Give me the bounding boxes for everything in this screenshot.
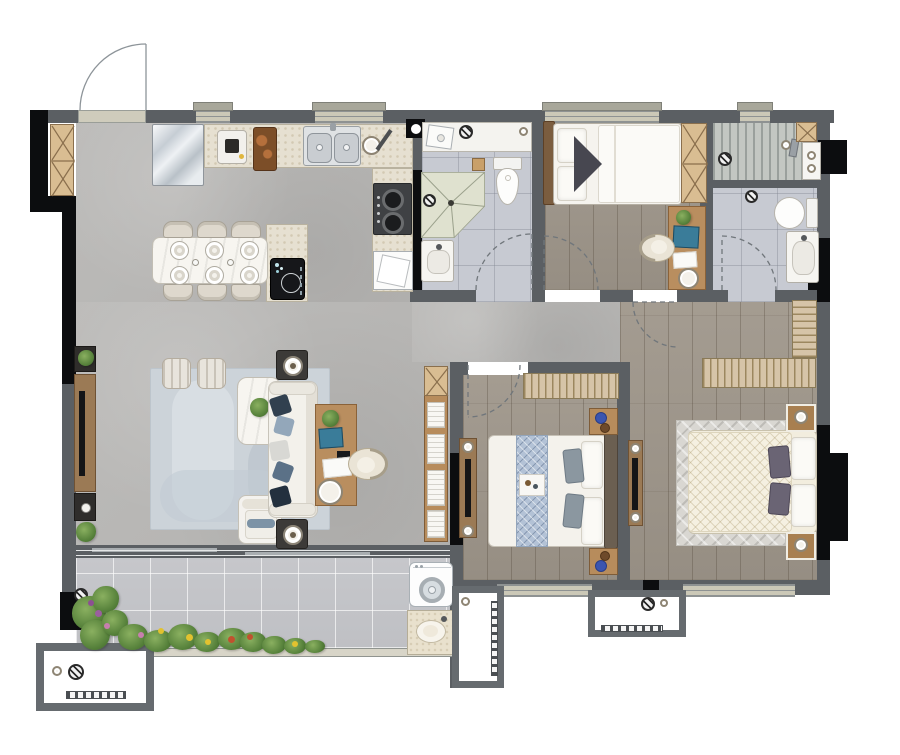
grille — [491, 601, 498, 676]
shelf-cabinet — [424, 366, 448, 396]
flower — [205, 639, 211, 645]
cushion — [562, 448, 584, 484]
tv — [632, 458, 638, 510]
dining-chair — [197, 221, 227, 238]
vent-hole — [52, 666, 62, 676]
plate — [205, 241, 224, 260]
flower — [88, 600, 94, 606]
basin — [427, 250, 450, 274]
pipe — [411, 124, 421, 134]
burner — [382, 212, 404, 234]
vent-hole — [461, 597, 470, 606]
button — [300, 283, 302, 287]
water-heater — [802, 142, 821, 180]
cushion — [562, 493, 584, 529]
flower — [95, 610, 102, 617]
wall-bump — [737, 102, 773, 111]
knob — [794, 410, 808, 424]
button — [415, 565, 418, 568]
bowl — [774, 197, 805, 229]
wall-b — [818, 140, 847, 174]
line — [451, 203, 454, 238]
books — [427, 402, 445, 428]
dot — [276, 270, 279, 273]
faucet — [436, 244, 442, 250]
oven — [373, 251, 413, 290]
pillow — [791, 437, 816, 480]
wall-b — [817, 425, 830, 567]
knob — [794, 538, 808, 552]
entry-door-arc — [80, 44, 146, 110]
button — [300, 291, 302, 295]
desk-chair — [639, 234, 675, 262]
books — [427, 510, 445, 538]
duvet-fold — [614, 126, 616, 202]
wall-g — [600, 290, 633, 302]
wall-sill — [740, 110, 770, 123]
line — [421, 203, 451, 238]
drain-dot — [343, 144, 350, 151]
dining-chair — [231, 284, 261, 301]
papers — [672, 251, 697, 269]
sofa-pillow — [268, 439, 290, 461]
cone — [81, 503, 91, 513]
books — [427, 470, 445, 506]
flush — [505, 175, 511, 181]
wall-sill — [315, 110, 383, 123]
utility-cabinet — [796, 122, 817, 142]
wardrobe — [523, 373, 619, 399]
tv — [79, 391, 85, 476]
fridge — [152, 124, 204, 186]
plate — [240, 266, 259, 285]
knob — [630, 443, 641, 454]
x-pattern — [682, 124, 708, 204]
tray-dot — [533, 484, 538, 489]
flower — [186, 634, 193, 641]
flower — [138, 632, 144, 638]
knob-dot — [377, 220, 380, 223]
wall-bump — [193, 102, 233, 111]
floor-drain — [718, 152, 732, 166]
floor-drain — [423, 194, 436, 207]
plate — [170, 266, 189, 285]
wall-bump — [542, 102, 662, 111]
heater-knob — [807, 164, 816, 173]
track-line — [76, 550, 450, 551]
wall-g — [705, 180, 817, 188]
tank — [806, 198, 818, 228]
drum-dot — [428, 586, 436, 594]
bed-headboard — [604, 433, 618, 549]
track-line — [76, 555, 450, 556]
x-pattern — [797, 123, 818, 143]
side-table — [276, 519, 308, 549]
button — [300, 267, 302, 271]
faucet — [330, 123, 336, 131]
panel-line — [413, 567, 451, 568]
books — [427, 434, 445, 464]
basin — [792, 241, 815, 275]
side-table — [276, 350, 308, 380]
hallway-floor — [412, 302, 620, 362]
line — [451, 203, 485, 206]
cushion — [768, 445, 792, 479]
plate — [170, 241, 189, 260]
grille — [601, 625, 663, 632]
wall-g — [677, 290, 728, 302]
pillow — [791, 484, 816, 527]
floor-drain — [641, 597, 655, 611]
gas-cooktop — [373, 183, 412, 235]
planter-box — [36, 643, 154, 711]
flower — [292, 641, 298, 647]
floor-drain — [459, 125, 473, 139]
wall-bump — [312, 102, 386, 111]
tv-console — [74, 374, 96, 492]
tray — [678, 268, 699, 289]
grille — [66, 691, 126, 699]
wall-g — [410, 290, 476, 302]
vanity-sink — [786, 231, 819, 283]
washing-machine — [409, 562, 453, 607]
bowl — [496, 168, 519, 205]
basin-inner — [423, 625, 438, 637]
wall-b — [30, 196, 76, 212]
ring — [281, 273, 301, 293]
lamp — [595, 560, 607, 572]
toilet — [491, 157, 524, 207]
wardrobe — [681, 123, 707, 203]
drain-dot — [316, 144, 323, 151]
wall-g — [62, 548, 76, 594]
wall-th — [78, 110, 146, 123]
drain-dot — [436, 134, 445, 143]
burner — [382, 189, 404, 211]
decor — [600, 551, 610, 561]
dining-chair — [163, 221, 193, 238]
bed-duvet — [598, 125, 680, 203]
dot — [280, 267, 283, 270]
laptop — [672, 225, 699, 248]
wall-b — [830, 453, 848, 541]
knob-dot — [377, 204, 380, 207]
pillow — [581, 441, 603, 489]
wall-b — [30, 110, 48, 210]
wall-g — [450, 362, 468, 375]
flower — [228, 636, 235, 643]
button — [420, 565, 423, 568]
desk-chair — [348, 448, 388, 480]
dot — [275, 263, 279, 267]
flower — [158, 628, 164, 634]
wood-stool — [472, 158, 485, 171]
laundry-basin — [426, 124, 455, 149]
laundry-counter — [407, 610, 454, 655]
faucet — [441, 616, 447, 622]
dining-chair — [163, 284, 193, 301]
media-box — [74, 493, 96, 521]
dining-chair — [197, 284, 227, 301]
x-pattern — [425, 367, 449, 397]
cup — [227, 259, 234, 266]
faucet — [801, 235, 807, 241]
flower — [247, 634, 253, 640]
tablet — [318, 427, 343, 449]
heater-knob — [807, 151, 816, 160]
seat-pillow — [247, 519, 275, 528]
cushion — [768, 482, 792, 516]
wall-sill — [196, 110, 230, 123]
wardrobe — [792, 300, 817, 358]
floor-drain — [745, 190, 758, 203]
knob — [630, 512, 641, 523]
bed-tray — [519, 474, 545, 496]
door-panel — [376, 254, 410, 287]
shoe-cabinet — [50, 124, 74, 196]
cutting-board — [253, 127, 277, 171]
knob-dot — [377, 196, 380, 199]
faucet — [519, 127, 528, 136]
pillow — [581, 497, 603, 545]
floor-drain — [68, 664, 84, 680]
knob — [462, 441, 474, 453]
vent-hole — [660, 599, 668, 607]
seat — [651, 240, 667, 254]
knob — [462, 525, 474, 537]
cup — [192, 259, 199, 266]
tv — [465, 459, 471, 517]
bench-wardrobe — [702, 358, 816, 388]
bowl-center — [290, 532, 296, 538]
flower — [104, 623, 110, 629]
toilet — [774, 196, 818, 230]
ottoman — [197, 358, 226, 389]
coffee-maker — [217, 130, 247, 164]
indicator — [239, 154, 244, 159]
line — [451, 172, 485, 203]
button — [300, 275, 302, 279]
plate — [205, 266, 224, 285]
brew-head — [225, 139, 239, 153]
sofa-arm — [269, 382, 316, 395]
wall-sill — [497, 584, 592, 597]
floor-plan-canvas — [0, 0, 900, 755]
x-pattern — [51, 125, 75, 197]
dining-chair — [231, 221, 261, 238]
decor — [600, 423, 610, 433]
wall-g — [532, 290, 544, 302]
wall-sill — [683, 584, 795, 597]
ottoman — [162, 358, 191, 389]
wall-sill — [545, 110, 659, 123]
tray-dot — [525, 480, 531, 486]
plate — [240, 241, 259, 260]
bowl-center — [290, 363, 296, 369]
knob-dot — [377, 212, 380, 215]
seat — [357, 457, 375, 473]
kitchen-double-sink — [303, 126, 361, 166]
tray — [317, 479, 343, 505]
vanity-sink — [421, 240, 454, 282]
induction-hob — [270, 258, 305, 300]
